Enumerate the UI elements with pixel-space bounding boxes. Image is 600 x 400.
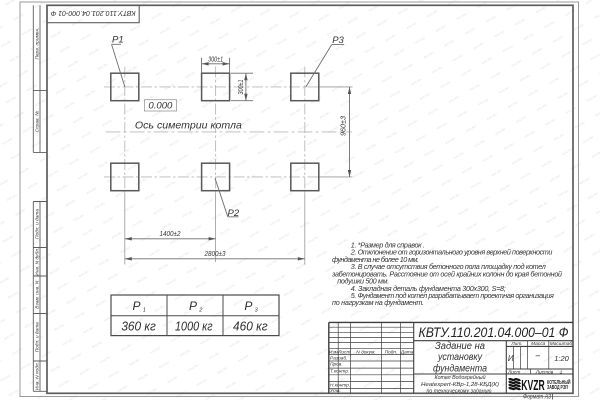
svg-text:Подп. и дата: Подп. и дата <box>34 209 40 239</box>
svg-text:Утв.: Утв. <box>330 388 341 394</box>
svg-text:1:20: 1:20 <box>554 354 569 363</box>
svg-text:Масштаб: Масштаб <box>550 341 573 347</box>
svg-text:460 кг: 460 кг <box>233 319 268 333</box>
svg-text:ЗАВОД РЭП: ЗАВОД РЭП <box>547 385 568 391</box>
svg-text:КВТУ.110.201.04.000-01 Ф: КВТУ.110.201.04.000-01 Ф <box>51 9 136 18</box>
svg-text:300±1: 300±1 <box>208 56 223 63</box>
svg-text:И: И <box>508 354 514 363</box>
svg-text:Heatexpert-КВр-1,28-КБД(К): Heatexpert-КВр-1,28-КБД(К) <box>421 382 499 388</box>
svg-text:Котел Водогрейный: Котел Водогрейный <box>435 374 487 381</box>
svg-text:Лит.: Лит. <box>510 341 522 347</box>
svg-text:Разраб.: Разраб. <box>330 355 347 361</box>
svg-text:Инв. N подл.: Инв. N подл. <box>34 362 40 390</box>
svg-text:Р3: Р3 <box>332 35 344 46</box>
svg-text:0.000: 0.000 <box>148 100 173 111</box>
svg-text:KVZR: KVZR <box>521 377 545 394</box>
svg-text:2800±3: 2800±3 <box>204 251 226 258</box>
svg-text:Подп. и дата: Подп. и дата <box>34 322 40 352</box>
svg-text:фундамента: фундамента <box>433 363 487 375</box>
svg-text:Ось симетрии котла: Ось симетрии котла <box>135 119 242 131</box>
svg-text:Подп.: Подп. <box>385 349 398 355</box>
svg-text:по нагрузкам на фундамент.: по нагрузкам на фундамент. <box>332 298 424 307</box>
svg-text:1000 кг: 1000 кг <box>175 319 213 333</box>
svg-text:установку: установку <box>437 352 483 363</box>
svg-text:1: 1 <box>560 370 563 376</box>
svg-text:960±3: 960±3 <box>340 116 347 136</box>
svg-text:Инв. N дубл.: Инв. N дубл. <box>34 248 40 276</box>
svg-text:360 кг: 360 кг <box>121 319 156 333</box>
svg-text:Лист: Лист <box>507 370 520 376</box>
svg-text:Р2: Р2 <box>227 208 239 219</box>
svg-text:Р1: Р1 <box>112 35 124 46</box>
svg-text:1400±2: 1400±2 <box>160 231 181 238</box>
svg-text:Н.контр.: Н.контр. <box>330 383 350 389</box>
svg-text:по техническому заданию: по техническому заданию <box>427 388 493 394</box>
svg-text:Пров.: Пров. <box>330 361 343 367</box>
svg-text:N докум.: N докум. <box>356 349 375 355</box>
svg-text:Лист: Лист <box>337 349 350 355</box>
svg-text:300±1: 300±1 <box>238 79 245 94</box>
svg-text:Листов: Листов <box>535 370 554 376</box>
svg-text:Масса: Масса <box>531 341 546 347</box>
svg-text:КВТУ.110.201.04.000–01 Ф: КВТУ.110.201.04.000–01 Ф <box>419 324 569 340</box>
svg-text:Дата: Дата <box>400 349 414 355</box>
svg-text:Т.контр.: Т.контр. <box>330 369 349 375</box>
svg-text:Формат А3: Формат А3 <box>523 395 552 400</box>
svg-text:–: – <box>535 351 541 360</box>
svg-text:Задание на: Задание на <box>435 341 485 352</box>
svg-text:Взам. инв. N: Взам. инв. N <box>34 280 40 308</box>
svg-text:Перв. примен.: Перв. примен. <box>35 28 41 60</box>
svg-text:Справ. №: Справ. № <box>34 111 40 133</box>
